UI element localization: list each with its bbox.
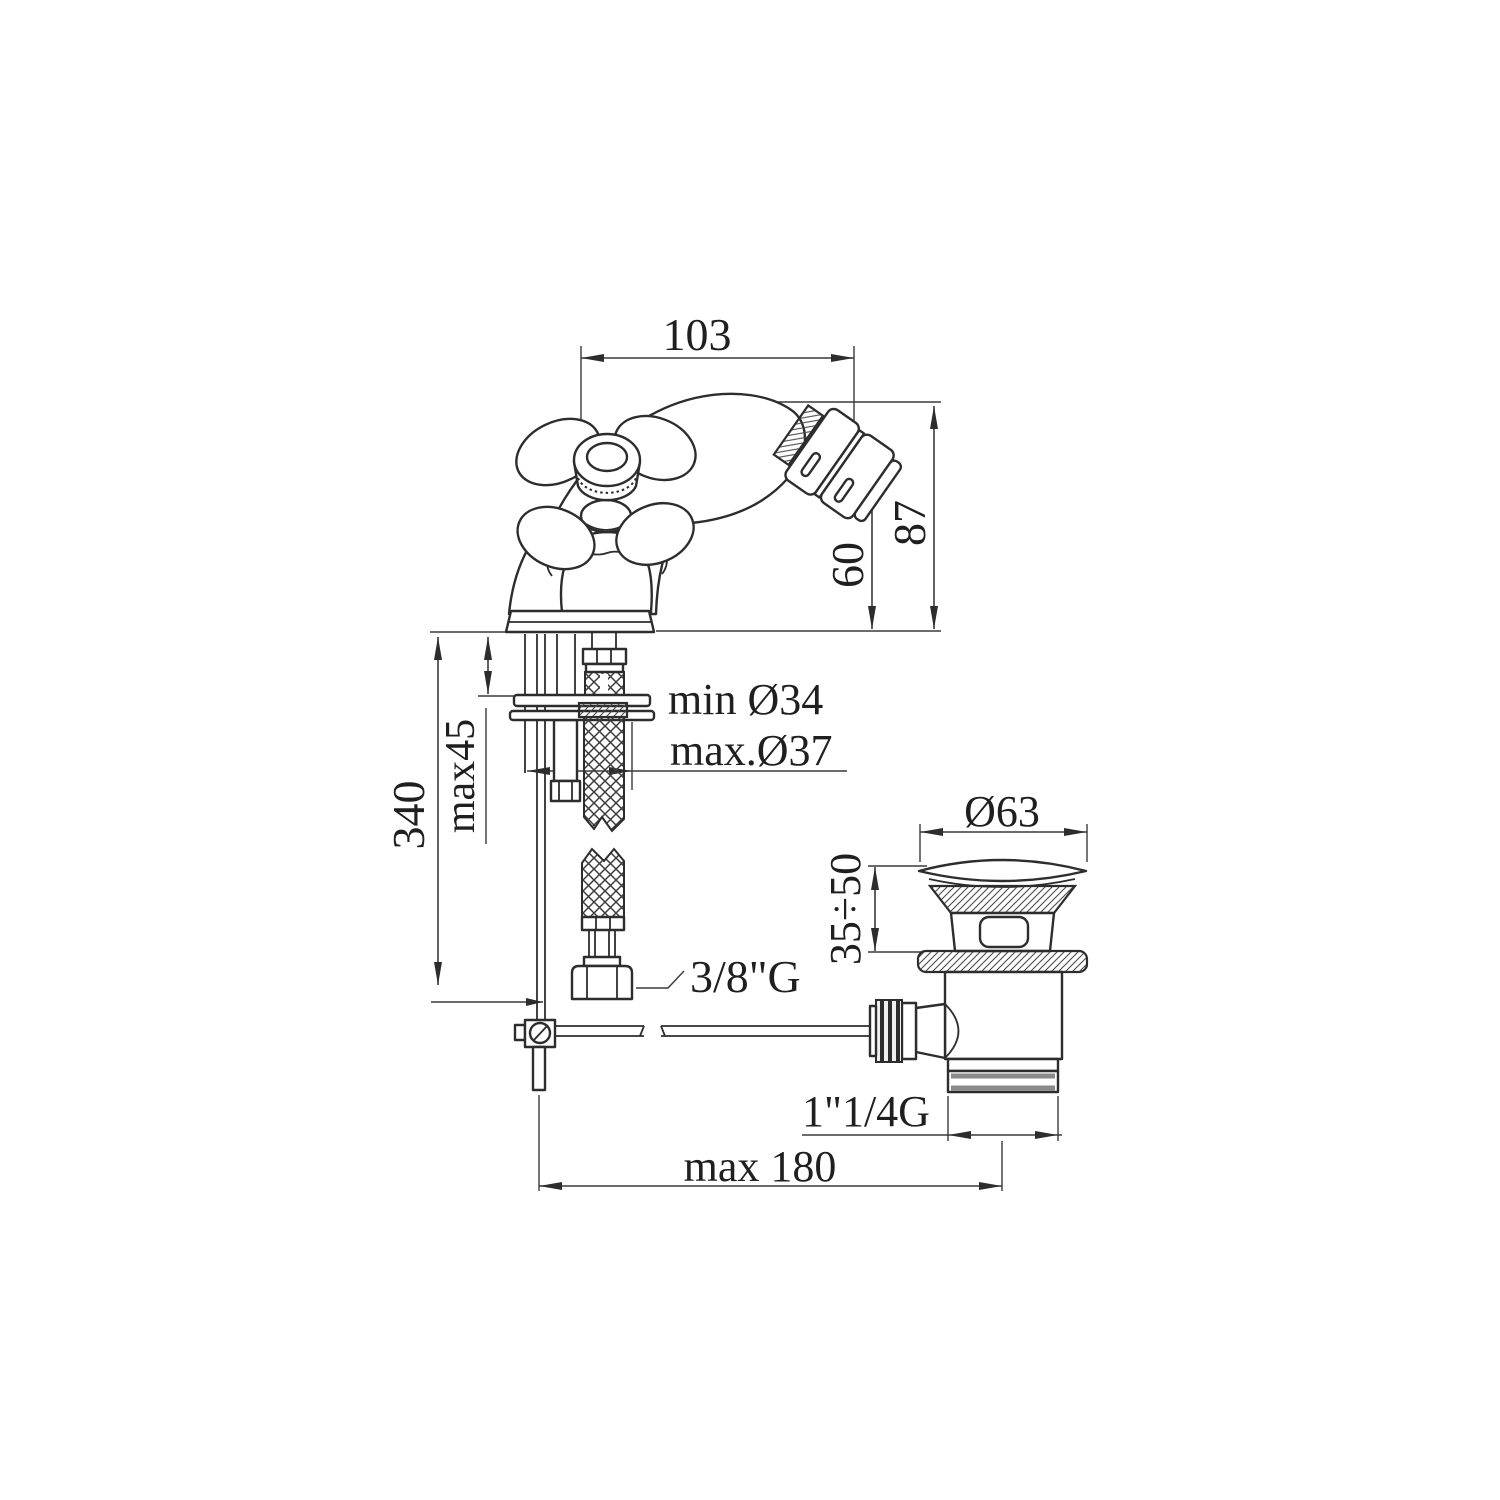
waste-cap	[919, 860, 1086, 881]
supply-hose-break-bottom	[582, 849, 624, 917]
connector-neck	[916, 1004, 945, 1058]
dim-waste-thread: 1"1/4G	[802, 1087, 930, 1136]
dim-spout-projection: 103	[663, 309, 732, 360]
dim-waste-diameter: Ø63	[964, 787, 1040, 836]
clamp-stub	[515, 1025, 525, 1040]
mounting-stud	[554, 720, 577, 781]
supply-hose-break-top	[584, 717, 624, 831]
dim-hole-max: max.Ø37	[670, 726, 833, 775]
dim-spout-height: 87	[884, 500, 935, 546]
deck-section	[579, 703, 627, 717]
knurled-connector	[876, 1000, 902, 1062]
waste-flange	[918, 951, 1087, 972]
under-counter-assembly	[510, 633, 654, 1020]
supply-nut-3-8	[572, 966, 632, 999]
dim-hose-length: 340	[383, 781, 434, 850]
dim-max-deck: max45	[438, 719, 484, 833]
dim-waste-height-range: 35÷50	[821, 853, 870, 965]
waste-cone	[930, 886, 1075, 913]
stud-nut	[551, 781, 580, 801]
dim-rod-reach: max 180	[684, 1142, 837, 1191]
waste-window	[980, 917, 1028, 947]
dim-hole-min: min Ø34	[668, 675, 823, 724]
dim-outlet-height: 60	[822, 542, 873, 588]
waste-cylinder	[945, 972, 1062, 1059]
faucet-body	[505, 394, 907, 632]
technical-drawing-page: 103 87 60 340 max45 min Ø34 max.Ø37 3/8"…	[0, 0, 1500, 1500]
pop-up-rod-lower	[533, 1047, 545, 1090]
handle-cap-button	[587, 443, 627, 471]
pop-up-linkage	[515, 1020, 870, 1090]
pop-up-waste	[870, 860, 1087, 1092]
bidet-mixer-technical-drawing: 103 87 60 340 max45 min Ø34 max.Ø37 3/8"…	[0, 0, 1500, 1500]
hose-hex-fitting	[583, 649, 626, 664]
dim-supply-thread: 3/8"G	[690, 951, 801, 1002]
